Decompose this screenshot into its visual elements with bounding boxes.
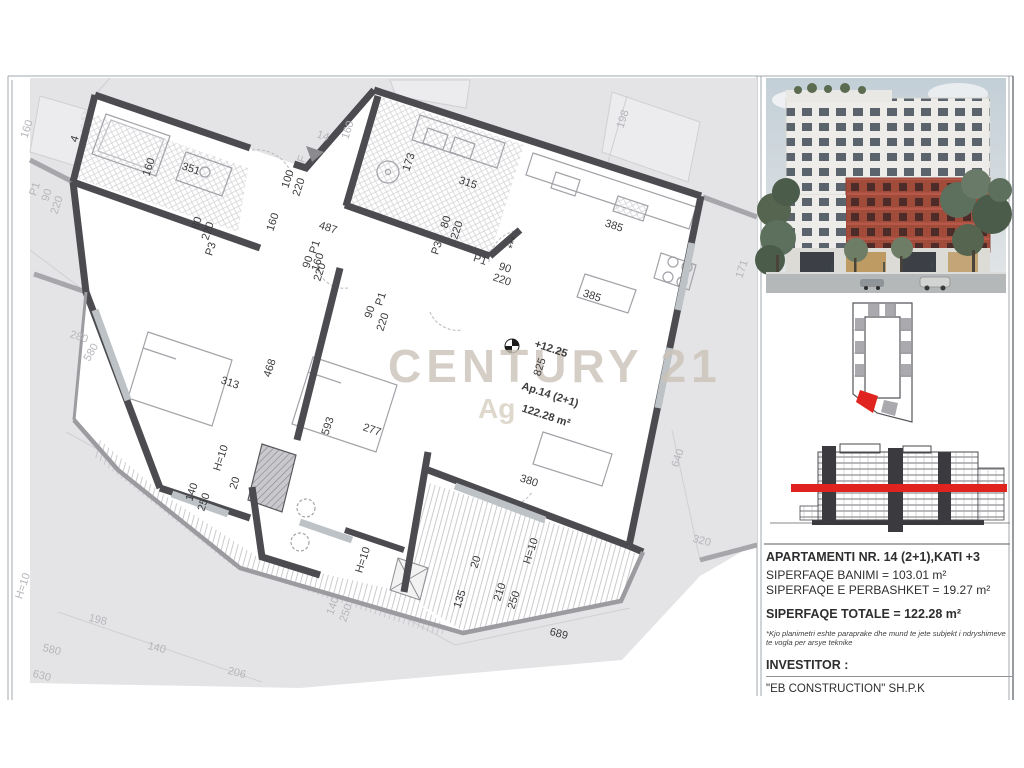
plan-sheet: CENTURY 21 Ag 351160410022017331580220P3…: [0, 0, 1024, 768]
info-panel: APARTAMENTI NR. 14 (2+1),KATI +3 SIPERFA…: [766, 548, 1012, 695]
investor-label: INVESTITOR :: [766, 658, 1012, 672]
investor-name: "EB CONSTRUCTION" SH.P.K: [766, 683, 1012, 695]
watermark-sub: Ag: [478, 393, 515, 424]
section-floor-highlight: [791, 484, 1007, 492]
area-perbashket: SIPERFAQE E PERBASHKET = 19.27 m²: [766, 583, 1012, 597]
investor-rule: [766, 676, 1012, 677]
area-totale: SIPERFAQE TOTALE = 122.28 m²: [766, 607, 1012, 621]
area-banimi: SIPERFAQE BANIMI = 103.01 m²: [766, 568, 1012, 582]
disclaimer-line1: *Kjo planimetri eshte paraprake dhe mund…: [766, 629, 1006, 638]
key-plan: [853, 303, 912, 422]
floor-plan: CENTURY 21 Ag 351160410022017331580220P3…: [13, 78, 757, 688]
disclaimer-line2: te vogla per arsye teknike: [766, 638, 853, 647]
building-section: [770, 444, 1010, 532]
apartment-title: APARTAMENTI NR. 14 (2+1),KATI +3: [766, 550, 1012, 564]
disclaimer-note: *Kjo planimetri eshte paraprake dhe mund…: [766, 629, 1012, 648]
building-render: [755, 78, 1012, 293]
